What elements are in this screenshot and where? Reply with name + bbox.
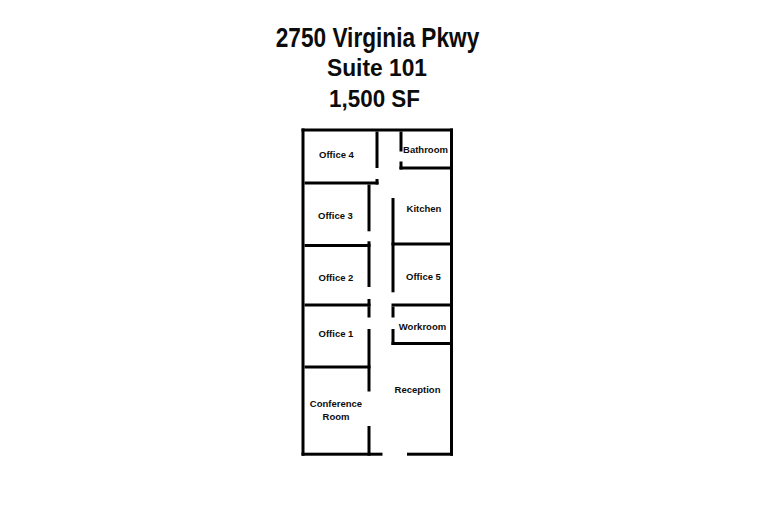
svg-text:Room: Room xyxy=(323,411,350,422)
svg-text:Suite 101: Suite 101 xyxy=(327,54,427,81)
svg-text:Reception: Reception xyxy=(395,384,441,395)
svg-text:Office 1: Office 1 xyxy=(319,328,355,339)
svg-text:1,500 SF: 1,500 SF xyxy=(329,86,420,112)
svg-text:Workroom: Workroom xyxy=(399,321,446,332)
svg-text:Kitchen: Kitchen xyxy=(407,203,442,214)
svg-text:2750 Virginia Pkwy: 2750 Virginia Pkwy xyxy=(276,22,480,53)
svg-text:Office 2: Office 2 xyxy=(319,272,354,283)
svg-text:Bathroom: Bathroom xyxy=(403,144,448,155)
svg-text:Office 4: Office 4 xyxy=(319,149,355,160)
svg-text:Office 5: Office 5 xyxy=(406,271,442,282)
svg-text:Office 3: Office 3 xyxy=(318,210,353,221)
svg-text:Conference: Conference xyxy=(310,398,362,409)
